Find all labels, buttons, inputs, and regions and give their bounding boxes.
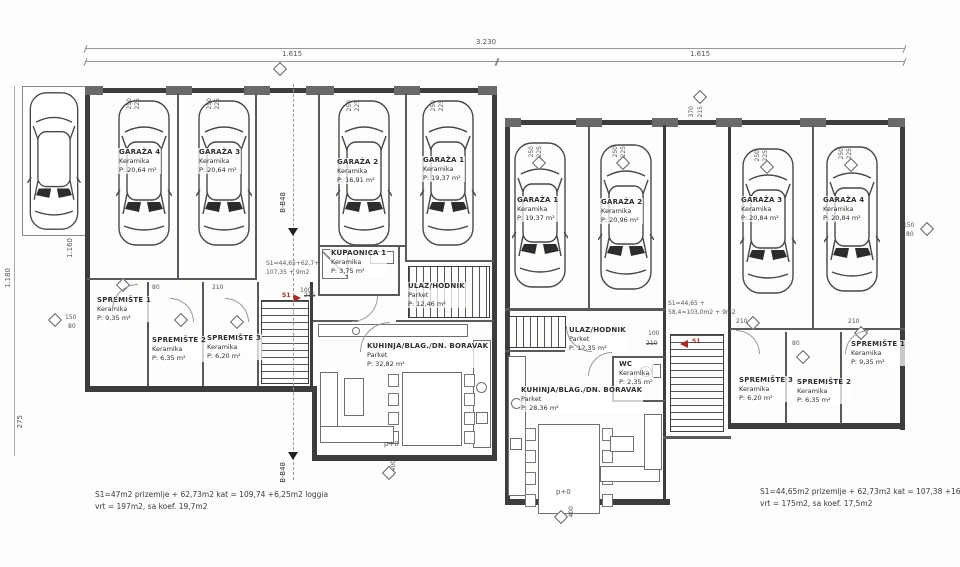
dim-garage-door: 250 <box>612 146 619 157</box>
room-area: P: 20,84 m² <box>741 214 782 222</box>
room-name: GARAŽA 2 <box>601 198 642 207</box>
wall <box>730 328 905 330</box>
dim-window: 80 <box>906 231 914 238</box>
room-label-garage3: GARAŽA 3 Keramika P: 20,84 m² <box>740 196 783 222</box>
section-line <box>293 84 294 480</box>
room-label-kitchen-living: KUHINJA/BLAG./DN. BORAVAK Parket P: 28,3… <box>520 386 643 412</box>
wall-pier <box>306 86 334 95</box>
coffee-table <box>610 436 634 452</box>
dim-left-lower: 275 <box>16 415 24 428</box>
dim-parking-depth: 1.160 <box>66 238 74 258</box>
dim-right-half: 1.615 <box>690 50 710 58</box>
room-label-garage1: GARAŽA 1 Keramika P: 19,37 m² <box>422 156 465 182</box>
room-area: P: 12,46 m² <box>408 300 465 308</box>
dim-garage-door: 225 <box>214 98 221 109</box>
floor-level-label: p+0 <box>556 488 571 496</box>
chair <box>388 374 399 387</box>
kitchen-counter <box>508 356 526 496</box>
room-material: Keramika <box>823 205 864 213</box>
sofa <box>644 414 662 470</box>
dim-door: 210 <box>848 318 859 325</box>
wall <box>177 93 179 280</box>
room-name: GARAŽA 4 <box>119 148 160 157</box>
room-area: P: 9,35 m² <box>851 358 905 366</box>
wall <box>312 386 317 461</box>
chair <box>464 374 475 387</box>
stair-area-note: 58,4=103,0m2 + 9m2 <box>668 309 736 316</box>
section-arrow-icon <box>288 452 298 460</box>
car-icon <box>26 90 82 232</box>
wall <box>85 386 317 392</box>
room-material: Keramika <box>152 345 206 353</box>
room-area: P: 20,84 m² <box>823 214 864 222</box>
wall <box>663 125 666 505</box>
area-summary-left: vrt = 197m2, sa koef. 19,7m2 <box>95 502 207 511</box>
room-label-storage2: SPREMIŠTE 2 Keramika P: 6,35 m² <box>151 336 207 362</box>
room-name: SPREMIŠTE 3 <box>207 334 261 343</box>
door-swing <box>170 298 194 322</box>
room-label-garage4: GARAŽA 4 Keramika P: 20,64 m² <box>118 148 161 174</box>
wall <box>87 278 257 280</box>
room-area: P: 28,36 m² <box>521 404 642 412</box>
wall-pier <box>85 86 103 95</box>
dim-garage-door: 225 <box>438 100 445 111</box>
dim-garage-door: 225 <box>354 100 361 111</box>
door-swing <box>736 330 760 354</box>
room-area: P: 19,37 m² <box>517 214 558 222</box>
dimension-line-total <box>85 48 905 49</box>
chair <box>525 428 536 441</box>
room-name: ULAZ/HODNIK <box>408 282 465 291</box>
room-area: P: 2,35 m² <box>619 378 653 386</box>
sink <box>352 327 360 335</box>
level-marker-icon <box>293 294 301 302</box>
room-name: GARAŽA 1 <box>517 196 558 205</box>
room-material: Keramika <box>797 387 851 395</box>
room-area: P: 19,37 m² <box>423 174 464 182</box>
kitchen-counter <box>318 324 468 337</box>
room-material: Keramika <box>119 157 160 165</box>
wall <box>312 455 497 461</box>
chair <box>525 494 536 507</box>
room-material: Keramika <box>423 165 464 173</box>
wall <box>202 282 204 386</box>
wall-pier <box>166 86 192 95</box>
wall <box>663 436 731 439</box>
level-marker-icon <box>680 340 688 348</box>
room-material: Keramika <box>739 385 793 393</box>
wall <box>396 320 494 322</box>
room-name: GARAŽA 1 <box>423 156 464 165</box>
room-name: GARAŽA 3 <box>741 196 782 205</box>
stove <box>476 412 488 424</box>
wall-pier <box>888 118 905 127</box>
dining-table <box>538 424 600 514</box>
sink <box>476 382 487 393</box>
chair <box>388 393 399 406</box>
window-marker-icon <box>48 313 62 327</box>
chair <box>525 450 536 463</box>
dim-garage-door: 250 <box>206 98 213 109</box>
floor-plan-sheet: 3.230 1.615 1.615 1.180 275 1.160 <box>0 0 960 567</box>
sofa <box>320 426 394 443</box>
dim-garage-door: 250 <box>430 100 437 111</box>
room-name: KUHINJA/BLAG./DN. BORAVAK <box>521 386 642 395</box>
room-area: P: 20,64 m² <box>199 166 240 174</box>
stove <box>510 438 522 450</box>
wall <box>900 120 905 430</box>
dim-door: 80 <box>792 340 800 347</box>
dim-door: 210 <box>212 284 223 291</box>
room-name: KUPAONICA 1 <box>331 249 386 258</box>
room-name: SPREMIŠTE 3 <box>739 376 793 385</box>
dimension-line-right-half <box>497 61 905 62</box>
dining-table <box>402 372 462 446</box>
entry-stairs <box>508 316 566 348</box>
room-name: GARAŽA 4 <box>823 196 864 205</box>
door-swing <box>112 284 138 310</box>
dim-garage-door: 250 <box>126 98 133 109</box>
door-swing <box>225 298 249 322</box>
coffee-table <box>344 378 364 416</box>
window-marker-icon <box>920 222 934 236</box>
window-marker-icon <box>273 62 287 76</box>
area-summary-left: S1=47m2 prizemlje + 62,73m2 kat = 109,74… <box>95 490 328 499</box>
room-area: P: 6,20 m² <box>739 394 793 402</box>
wall <box>812 125 814 330</box>
area-summary-right: S1=44,65m2 prizemlje + 62,73m2 kat = 107… <box>760 487 960 496</box>
room-area: P: 20,96 m² <box>601 216 642 224</box>
dim-window: 400 <box>568 506 575 517</box>
chair <box>464 393 475 406</box>
staircase <box>670 334 724 432</box>
dim-window: 370 <box>688 106 695 117</box>
room-material: Parket <box>521 395 642 403</box>
room-material: Parket <box>408 291 465 299</box>
dim-left-half: 1.615 <box>282 50 302 58</box>
room-label-storage3: SPREMIŠTE 3 Keramika P: 6,20 m² <box>738 376 794 402</box>
room-area: P: 16,91 m² <box>337 176 378 184</box>
section-label: B-B48 <box>279 192 287 213</box>
dim-crossed: 215 <box>304 292 315 299</box>
dim-window: 215 <box>697 106 704 117</box>
dim-garage-door: 250 <box>838 148 845 159</box>
room-name: GARAŽA 2 <box>337 158 378 167</box>
room-name: GARAŽA 3 <box>199 148 240 157</box>
door-swing <box>845 330 869 354</box>
wall-pier <box>716 118 742 127</box>
room-label-entry: ULAZ/HODNIK Parket P: 12,46 m² <box>407 282 466 308</box>
level-marker-label: S1 <box>692 338 701 345</box>
wall <box>505 308 665 311</box>
wall <box>612 356 665 358</box>
wall <box>728 423 905 429</box>
room-area: P: 20,64 m² <box>119 166 160 174</box>
staircase <box>261 300 309 384</box>
room-label-garage2: GARAŽA 2 Keramika P: 16,91 m² <box>336 158 379 184</box>
room-material: Keramika <box>331 258 386 266</box>
door-marker-icon <box>796 350 810 364</box>
room-material: Keramika <box>619 369 653 377</box>
area-summary-right: vrt = 175m2, sa koef. 17,5m2 <box>760 499 872 508</box>
room-name: SPREMIŠTE 2 <box>152 336 206 345</box>
wall <box>85 88 497 93</box>
room-area: P: 6,35 m² <box>152 354 206 362</box>
dim-window: 80 <box>68 323 76 330</box>
wall <box>492 88 497 461</box>
room-material: Keramika <box>337 167 378 175</box>
room-area: P: 9,35 m² <box>97 314 151 322</box>
chair <box>602 494 613 507</box>
wall-pier <box>478 86 497 95</box>
stair-area-note: S1=44,65 + <box>668 300 705 307</box>
floor-level-label: p+0 <box>384 440 399 448</box>
door-swing <box>588 352 612 376</box>
level-marker-label: S1 <box>282 292 291 299</box>
wall <box>588 125 590 310</box>
wall <box>85 88 90 392</box>
room-area: P: 6,35 m² <box>797 396 851 404</box>
dim-crossed: 210 <box>646 340 657 347</box>
room-material: Keramika <box>517 205 558 213</box>
room-label-garage3: GARAŽA 3 Keramika P: 20,64 m² <box>198 148 241 174</box>
dim-left-height: 1.180 <box>4 268 12 288</box>
wall <box>405 93 407 262</box>
wall <box>405 260 494 262</box>
dim-door: 80 <box>152 284 160 291</box>
room-material: Keramika <box>207 343 261 351</box>
room-name: WC <box>619 360 653 369</box>
wall <box>398 245 400 296</box>
dim-door: 100 <box>648 330 659 337</box>
wall <box>505 350 565 352</box>
door-swing <box>352 296 378 322</box>
room-material: Keramika <box>741 205 782 213</box>
dim-garage-door: 250 <box>528 146 535 157</box>
dim-total: 3.230 <box>476 38 496 46</box>
sofa <box>320 372 338 432</box>
room-label-bathroom: KUPAONICA 1 Keramika P: 3,75 m² <box>330 249 387 275</box>
dimension-line-left-half <box>85 61 497 62</box>
dim-garage-door: 250 <box>754 150 761 161</box>
dim-window: 150 <box>65 314 76 321</box>
room-label-storage2: SPREMIŠTE 2 Keramika P: 6,35 m² <box>796 378 852 404</box>
stair-area-note: 107,35 + 9m2 <box>266 269 309 276</box>
dim-garage-door: 250 <box>346 100 353 111</box>
room-material: Parket <box>367 351 488 359</box>
room-area: P: 32,82 m² <box>367 360 488 368</box>
chair <box>464 431 475 444</box>
room-label-garage4: GARAŽA 4 Keramika P: 20,84 m² <box>822 196 865 222</box>
room-area: P: 3,75 m² <box>331 267 386 275</box>
section-label: B-B48 <box>279 462 287 483</box>
wall-pier <box>244 86 270 95</box>
room-material: Keramika <box>601 207 642 215</box>
room-material: Keramika <box>199 157 240 165</box>
window-marker-icon <box>693 90 707 104</box>
room-name: SPREMIŠTE 2 <box>797 378 851 387</box>
wall <box>505 120 905 125</box>
section-arrow-icon <box>288 228 298 236</box>
chair <box>388 412 399 425</box>
wall <box>728 120 731 429</box>
room-label-garage2: GARAŽA 2 Keramika P: 20,96 m² <box>600 198 643 224</box>
dim-window: 150 <box>903 222 914 229</box>
wall-pier <box>394 86 420 95</box>
room-label-storage3: SPREMIŠTE 3 Keramika P: 6,20 m² <box>206 334 262 360</box>
chair <box>464 412 475 425</box>
wall-pier <box>505 118 521 127</box>
room-label-garage1: GARAŽA 1 Keramika P: 19,37 m² <box>516 196 559 222</box>
chair <box>525 472 536 485</box>
room-area: P: 6,20 m² <box>207 352 261 360</box>
dimension-line-left-vertical <box>14 86 15 456</box>
room-label-wc: WC Keramika P: 2,35 m² <box>618 360 654 386</box>
wall <box>255 93 257 280</box>
dim-garage-door: 225 <box>134 98 141 109</box>
